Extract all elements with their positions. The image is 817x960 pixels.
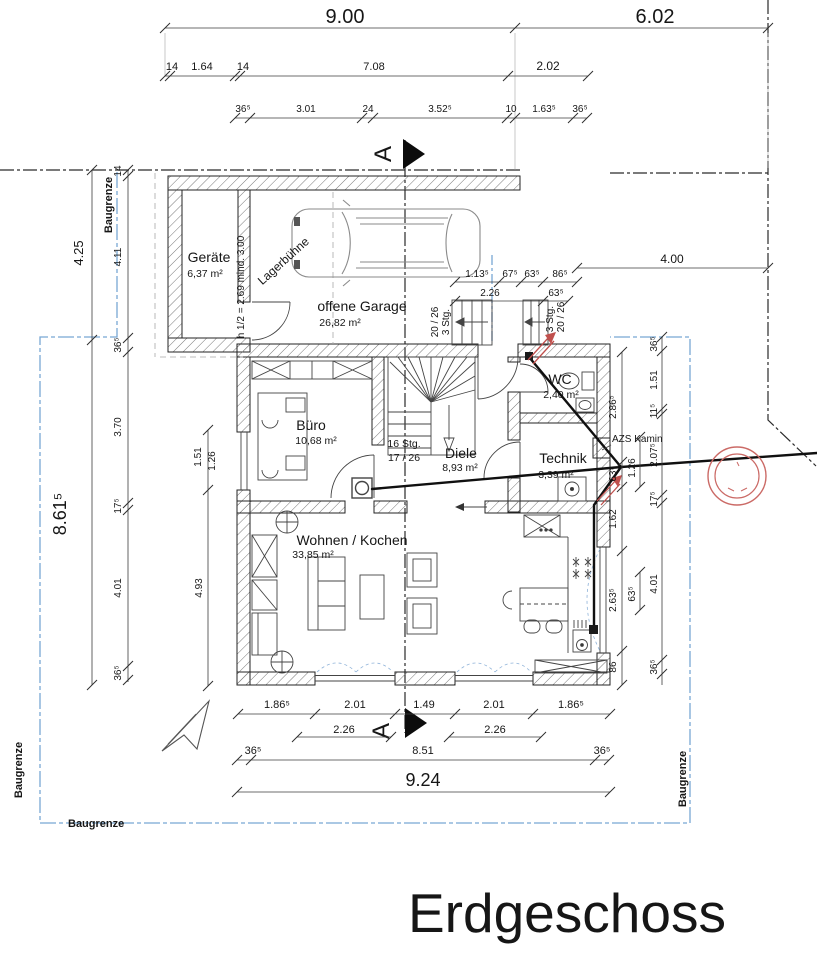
dims-entry: 1.13⁵ 67⁵ 63⁵ 86⁵ 2.26 63⁵ 4.00 — [450, 252, 773, 306]
room-area-diele: 8,93 m² — [442, 462, 478, 474]
baugrenze-label-bottom: Baugrenze — [68, 818, 124, 830]
dim-label: 1.64 — [191, 61, 212, 73]
room-area-wc: 2,40 m² — [543, 389, 579, 401]
dim-label: 67⁵ — [502, 269, 517, 280]
dim-label: 10 — [505, 104, 517, 115]
dim-label: 11⁵ — [649, 404, 660, 419]
dim-label: 8.51 — [412, 745, 433, 757]
dim-label: 3.52⁵ — [428, 104, 452, 115]
page-title: Erdgeschoss — [408, 882, 726, 944]
room-area-garage: 26,82 m² — [319, 317, 361, 329]
north-arrow — [162, 701, 209, 751]
room-name-wohnen: Wohnen / Kochen — [296, 532, 407, 548]
dim-label: 36⁵ — [113, 665, 124, 680]
baugrenze-label-right: Baugrenze — [677, 751, 689, 807]
note-stairs3-count: 20 / 26 — [430, 306, 441, 337]
note-lagerbuehne: Lagerbühne — [255, 234, 312, 287]
dim-label: 2.86⁵ — [608, 395, 619, 419]
floorplan-page: Baugrenze Baugrenze Baugrenze Baugrenze … — [0, 0, 817, 960]
dim-label: 1.63⁵ — [532, 104, 556, 115]
dim-label: 63⁵ — [548, 288, 563, 299]
dims-right: 2.86⁵ 63⁵ 1.62 2.63⁵ 86 1.26 63⁵ 36⁵ 1.5… — [602, 332, 667, 690]
floorplan-drawing: Baugrenze Baugrenze Baugrenze Baugrenze … — [0, 0, 817, 960]
kitchen — [503, 515, 607, 673]
dim-label: 63⁵ — [608, 466, 619, 481]
red-stamp-circle — [708, 447, 766, 505]
dim-label: 36⁵ — [245, 745, 262, 757]
dim-label: 17⁵ — [649, 491, 660, 506]
dim-label: 1.51 — [649, 370, 660, 390]
dim-label: 2.26 — [333, 724, 354, 736]
dim-label: 1.49 — [413, 699, 434, 711]
section-arrow-top — [403, 139, 425, 169]
dim-label: 36⁵ — [649, 336, 660, 351]
dim-label: 2.01 — [344, 699, 365, 711]
dim-label: 2.07⁵ — [649, 443, 660, 467]
dims-bottom: 1.86⁵ 2.01 1.49 2.01 1.86⁵ 2.26 2.26 36⁵… — [232, 699, 615, 797]
note-stairs3-count-2: 20 / 26 — [556, 301, 567, 332]
dim-label: 4.93 — [194, 578, 205, 598]
cooktop-symbols — [573, 557, 591, 579]
room-area-technik: 3,39 m² — [538, 469, 574, 481]
dim-label: 36⁵ — [113, 337, 124, 352]
car — [292, 200, 480, 286]
window-swing-arcs — [317, 549, 600, 672]
dims-left: 4.25 8.61⁵ 14 4.11 36⁵ 3.70 17⁵ 4.01 36⁵… — [50, 165, 218, 691]
note-stairs16-a: 16 Stg. — [387, 438, 420, 450]
dim-label: 14 — [166, 61, 178, 73]
dim-label: 86⁵ — [552, 269, 567, 280]
chimney-block — [593, 438, 610, 458]
dim-label: 2.02 — [536, 59, 560, 73]
dim-label: 4.00 — [660, 252, 684, 266]
dim-label: 36⁵ — [594, 745, 611, 757]
walls — [168, 176, 610, 685]
dim-label: 24 — [362, 104, 374, 115]
dim-label: 1.86⁵ — [558, 699, 584, 711]
dim-label: 14 — [113, 165, 124, 177]
dim-label: 2.26 — [480, 288, 500, 299]
dim-label: 1.13⁵ — [465, 269, 489, 280]
dim-label: 4.11 — [113, 247, 124, 266]
dim-label: 6.02 — [636, 6, 675, 28]
dim-label: 2.63⁵ — [608, 588, 619, 612]
dim-label: 8.61⁵ — [50, 493, 70, 536]
dim-label: 4.01 — [113, 578, 124, 598]
room-area-wohnen: 33,85 m² — [292, 549, 334, 561]
section-arrow-bottom — [405, 708, 427, 738]
dim-label: 1.26 — [627, 458, 638, 478]
diele-opening-arrow — [455, 503, 487, 511]
dim-label: 3.70 — [113, 417, 124, 437]
dim-label: 36⁵ — [235, 104, 250, 115]
kamin-note: AZS Kamin — [612, 434, 663, 445]
dim-label: 14 — [237, 61, 249, 73]
dim-label: 2.01 — [483, 699, 504, 711]
baugrenze-label-left: Baugrenze — [13, 742, 25, 798]
room-name-buero: Büro — [296, 417, 326, 433]
note-stairs3-stg: 3 Stg. — [441, 309, 452, 335]
room-name-garage: offene Garage — [317, 298, 406, 314]
dims-top: 9.00 6.02 14 1.64 14 7.08 2.02 36⁵ 3.01 … — [160, 6, 773, 170]
baugrenze-label-top-left: Baugrenze — [103, 177, 115, 233]
note-stairs3-stg-2: 3 Stg. — [545, 306, 556, 332]
room-name-diele: Diele — [445, 445, 477, 461]
dim-label: 63⁵ — [627, 586, 638, 601]
dim-label: 36⁵ — [649, 659, 660, 674]
room-area-buero: 10,68 m² — [295, 435, 337, 447]
dim-label: 86 — [608, 661, 619, 673]
note-height: h 1/2 = 2.69 mind. 3.00 — [236, 235, 247, 338]
dim-label: 63⁵ — [524, 269, 539, 280]
dim-label: 1.51 — [193, 447, 204, 467]
dim-label: 9.24 — [405, 770, 440, 790]
dim-label: 36⁵ — [572, 104, 587, 115]
room-name-wc: WC — [548, 371, 571, 387]
dim-label: 1.26 — [207, 451, 218, 471]
dim-label: 3.01 — [296, 104, 316, 115]
room-name-technik: Technik — [539, 450, 587, 466]
garage-area — [155, 173, 548, 357]
dim-label: 4.25 — [71, 240, 86, 265]
dim-label: 7.08 — [363, 61, 384, 73]
dim-label: 4.01 — [649, 574, 660, 594]
garage-steps — [452, 300, 548, 345]
room-name-geraete: Geräte — [188, 249, 231, 265]
doors — [252, 302, 548, 498]
dim-label: 17⁵ — [113, 498, 124, 513]
room-area-geraete: 6,37 m² — [187, 268, 223, 280]
property-lines — [0, 0, 816, 466]
dim-label: 9.00 — [326, 6, 365, 28]
note-stairs16-b: 17 / 26 — [388, 452, 420, 464]
dim-label: 1.62 — [608, 509, 619, 529]
dim-label: 1.86⁵ — [264, 699, 290, 711]
dim-label: 2.26 — [484, 724, 505, 736]
section-label-top: A — [370, 146, 397, 162]
